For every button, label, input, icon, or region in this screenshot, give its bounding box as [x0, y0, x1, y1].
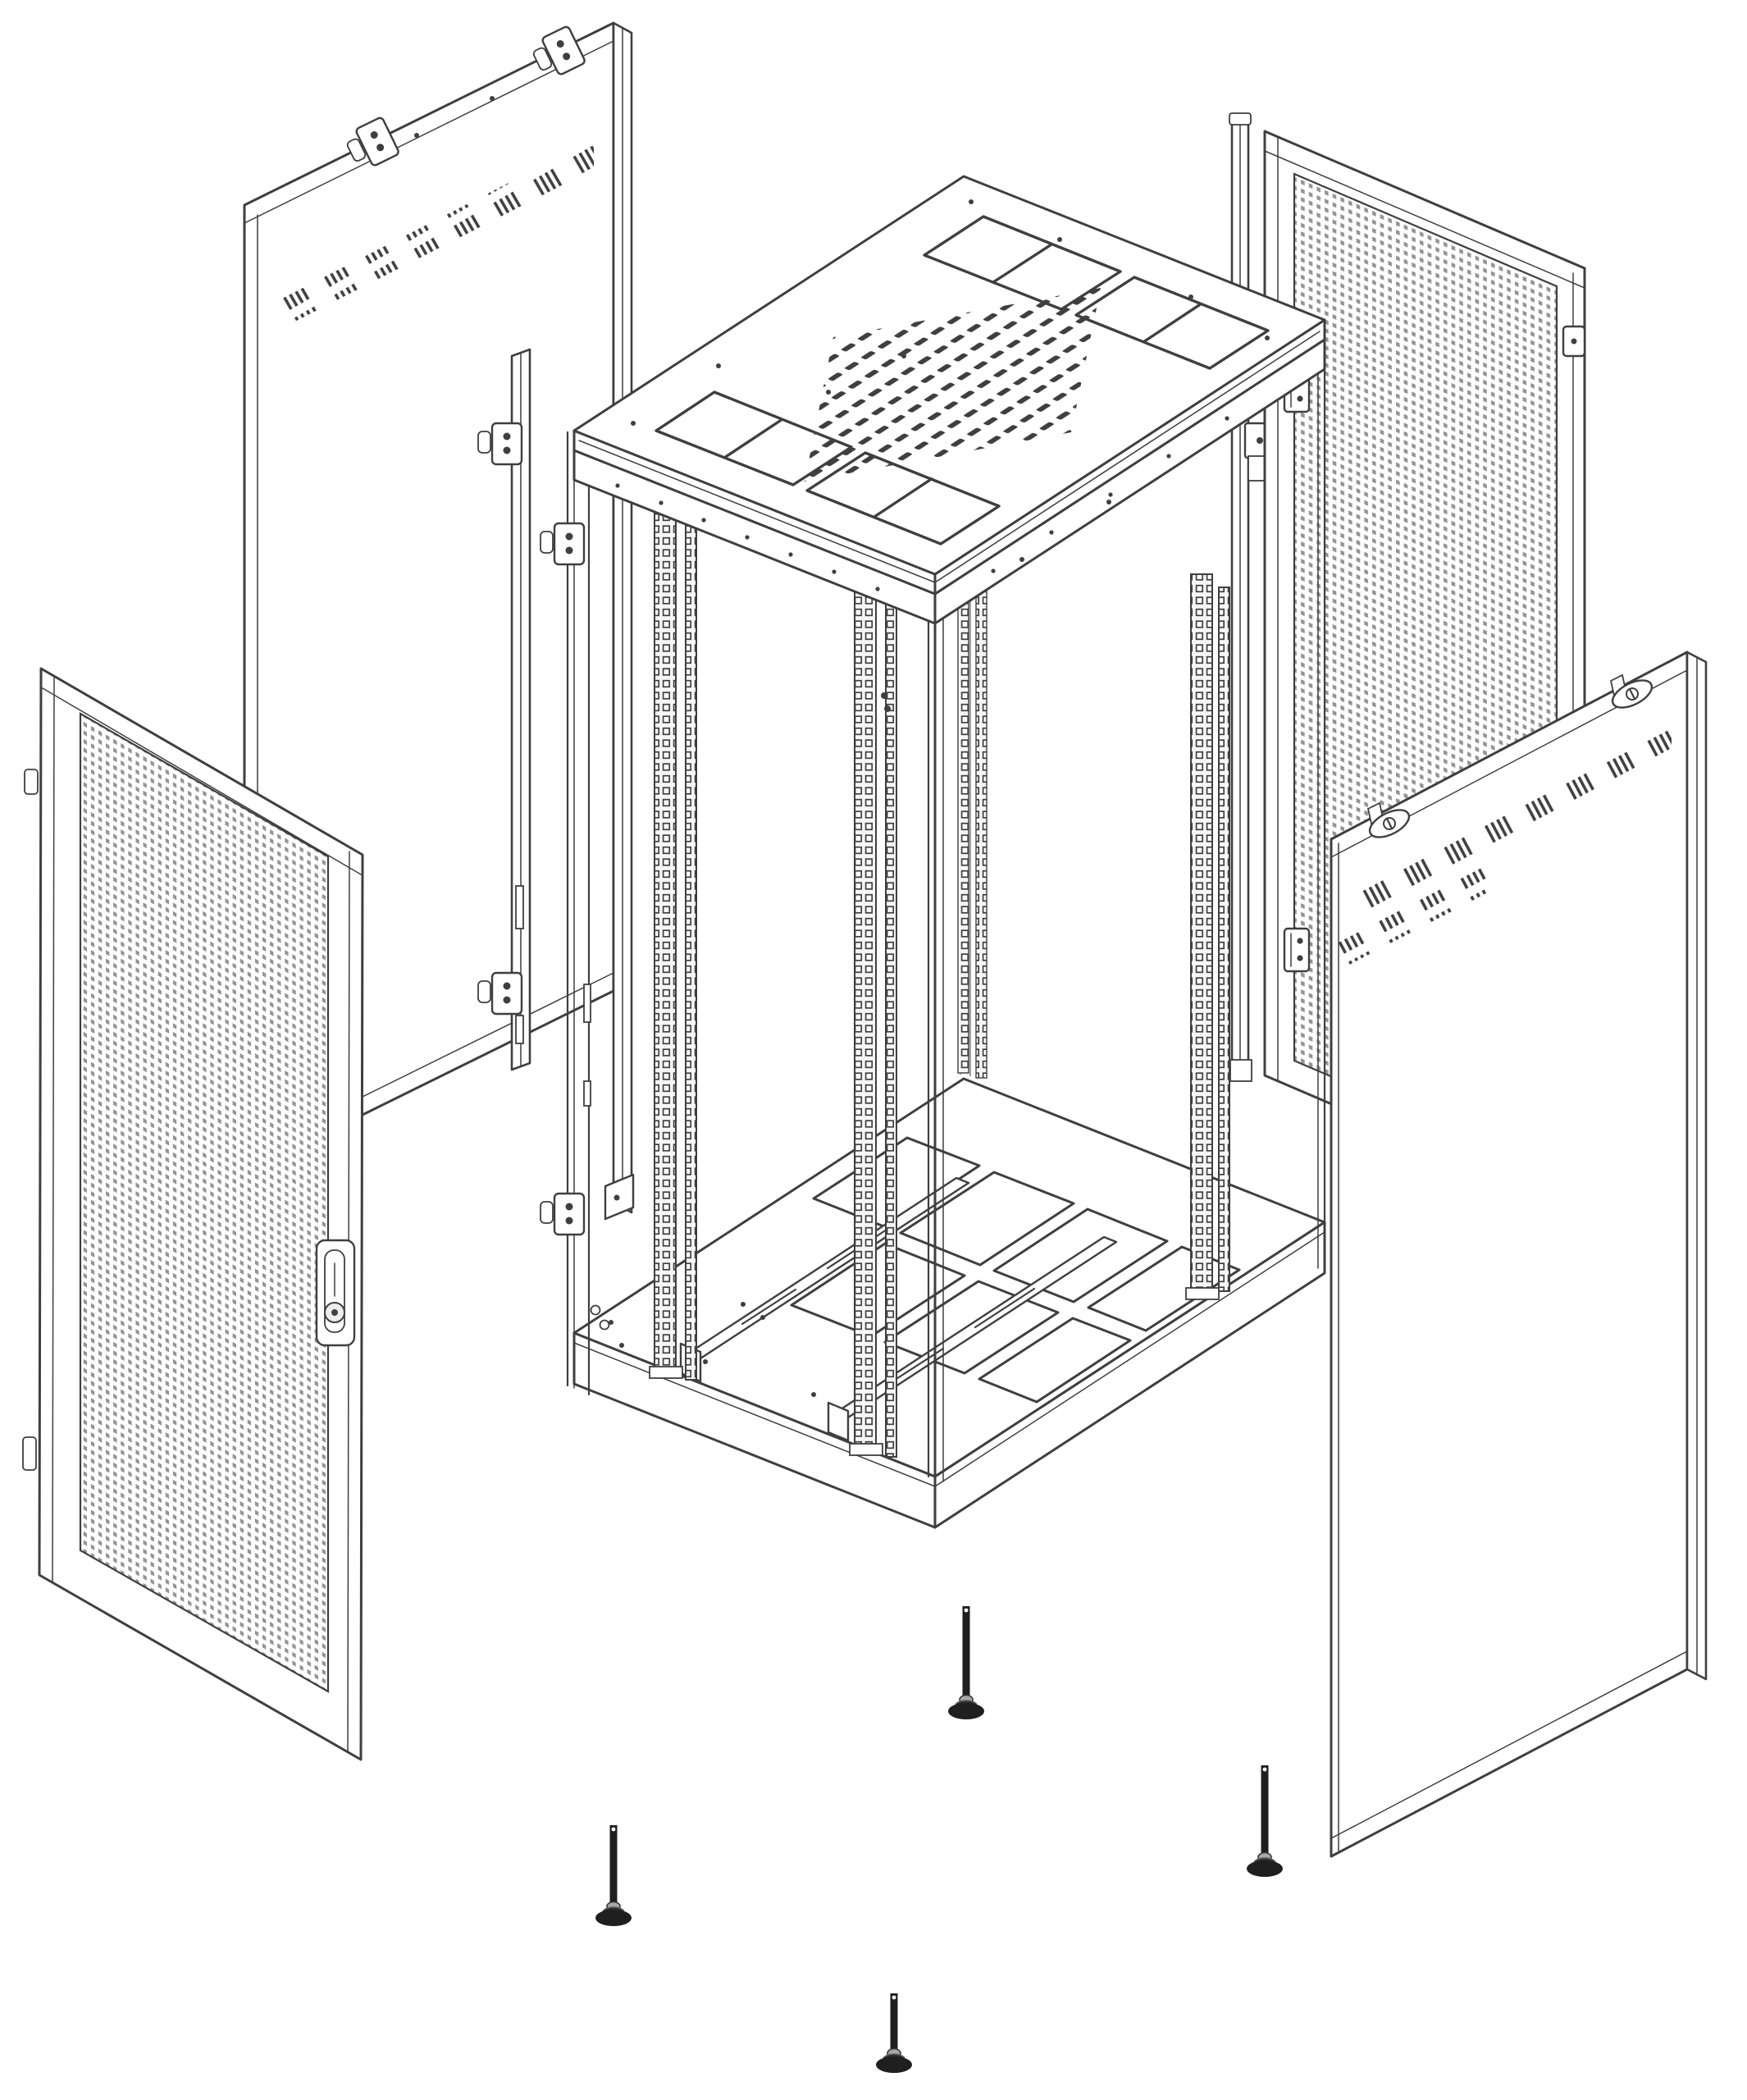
band-hole: [745, 535, 749, 539]
panel-screw-hole: [490, 96, 495, 101]
front-mesh-door: [23, 669, 363, 1760]
roof-screw-hole: [1019, 557, 1024, 562]
exploded-rack-diagram: [0, 0, 1747, 2100]
roof-screw-hole: [1106, 500, 1111, 504]
floor-hole: [811, 1392, 816, 1397]
mounting-rail-rear-right-b: [1219, 587, 1229, 1291]
band-hole: [1166, 454, 1170, 458]
rail-screw: [884, 705, 891, 712]
door-swing-handle: [317, 1240, 354, 1345]
roof-screw-hole: [716, 363, 721, 368]
roof-screw-hole: [1188, 294, 1193, 299]
post-slot: [584, 984, 591, 1022]
front-door-mesh: [80, 714, 328, 1691]
band-hole: [1225, 416, 1229, 420]
rail-foot-plate: [850, 1444, 883, 1455]
band-hole: [788, 552, 792, 556]
band-hole: [991, 568, 995, 573]
lock-rail-foot: [1230, 1060, 1252, 1081]
loose-screw: [591, 1306, 600, 1315]
latch-screw: [1571, 339, 1577, 345]
hinge-rail-slot: [516, 1016, 523, 1043]
rear-door-hinge-lower: [1284, 929, 1309, 971]
loose-screw: [600, 1321, 609, 1330]
roof-screw-hole: [826, 390, 831, 395]
rail-foot-plate: [650, 1367, 682, 1378]
hinge-rail-slot: [516, 886, 523, 929]
band-hole: [832, 569, 836, 573]
floor-hole: [703, 1359, 708, 1364]
door-hinge-pin-upper: [25, 769, 38, 794]
roof-screw-hole: [1057, 237, 1062, 242]
floor-hole: [760, 1315, 765, 1320]
side-panel-right: [1331, 652, 1706, 1856]
band-hole: [659, 500, 663, 504]
lock-screw: [1257, 437, 1263, 444]
roof-screw-hole: [969, 199, 974, 204]
post-slot: [584, 1081, 591, 1106]
roof-screw-hole: [1265, 336, 1270, 340]
band-hole: [701, 518, 705, 522]
floor-hole: [619, 1343, 624, 1348]
door-hinge-pin-lower: [23, 1437, 36, 1470]
mounting-rail-front-left: [655, 491, 676, 1373]
band-hole: [615, 483, 619, 487]
bracket-screw: [614, 1195, 620, 1201]
roof-screw-hole: [631, 421, 636, 426]
rail-foot-plate: [1186, 1288, 1219, 1299]
rail-screw: [881, 692, 887, 699]
panel-screw-hole: [414, 133, 419, 138]
mounting-rail-front-left-b: [686, 504, 696, 1380]
lock-rail-cap: [1229, 113, 1251, 125]
mounting-rail-rear-right: [1191, 574, 1212, 1294]
band-hole: [875, 587, 879, 591]
roof-screw-hole: [901, 354, 906, 358]
mounting-rail-front-right: [855, 571, 876, 1450]
band-hole: [1108, 492, 1112, 496]
floor-hole: [741, 1302, 746, 1307]
mounting-rail-front-right-b: [886, 584, 896, 1457]
band-hole: [1049, 530, 1053, 534]
